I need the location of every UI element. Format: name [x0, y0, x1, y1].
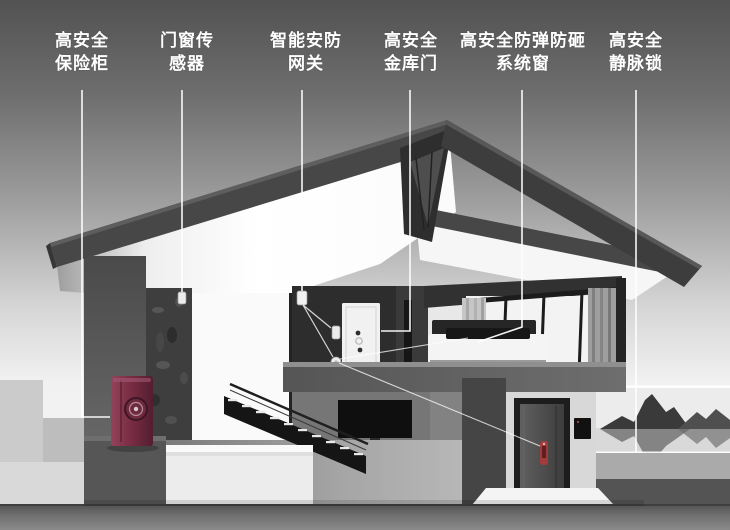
floor-slab	[283, 362, 626, 392]
bed	[428, 320, 546, 365]
label-line: 静脉锁	[609, 52, 663, 75]
label-line: 保险柜	[55, 52, 109, 75]
label-line: 网关	[270, 52, 342, 75]
label-vein-lock: 高安全 静脉锁	[609, 29, 663, 75]
label-security-gateway: 智能安防 网关	[270, 29, 342, 75]
label-line: 门窗传	[160, 29, 214, 52]
label-line: 高安全	[384, 29, 438, 52]
label-vault-door: 高安全 金库门	[384, 29, 438, 75]
mountain-landscape	[590, 386, 730, 463]
label-line: 高安全	[609, 29, 663, 52]
white-bench	[163, 445, 313, 505]
ground	[0, 500, 730, 530]
tv-screen	[338, 400, 412, 438]
intercom-panel	[574, 418, 591, 439]
label-line: 感器	[160, 52, 214, 75]
label-bulletproof-window: 高安全防弹防砸 系统窗	[460, 29, 586, 75]
label-line: 智能安防	[270, 29, 342, 52]
label-line: 金库门	[384, 52, 438, 75]
label-line: 系统窗	[460, 52, 586, 75]
label-door-window-sensor: 门窗传 感器	[160, 29, 214, 75]
label-line: 高安全防弹防砸	[460, 29, 586, 52]
vein-lock-handle	[540, 441, 548, 465]
home-security-poster: 高安全 保险柜 门窗传 感器 智能安防 网关 高安全 金库门 高安全防弹防砸 系…	[0, 0, 730, 530]
label-line: 高安全	[55, 29, 109, 52]
house-cutaway-illustration	[0, 0, 730, 530]
label-safe-box: 高安全 保险柜	[55, 29, 109, 75]
